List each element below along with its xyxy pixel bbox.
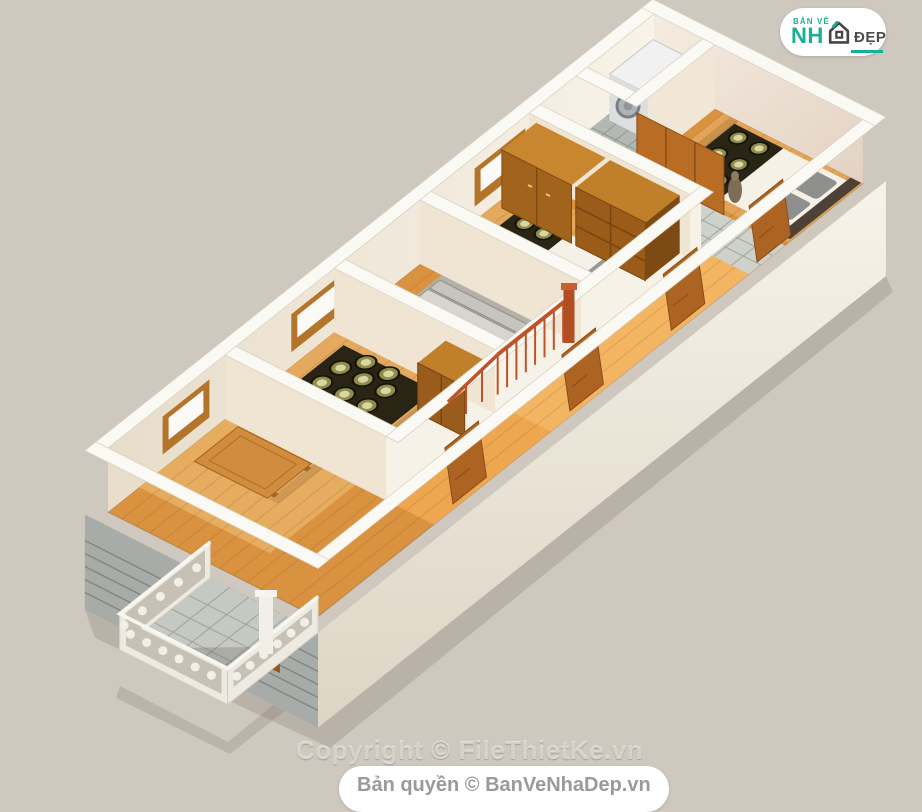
site-logo: BẢN VẼ NH ĐẸP: [780, 8, 886, 56]
logo-main-label: NH: [791, 23, 824, 49]
balcony-column: [259, 596, 273, 654]
house-icon: [824, 15, 854, 47]
footer-copyright-pill: Bản quyền © BanVeNhaDep.vn: [339, 766, 669, 812]
newel-post: [564, 287, 575, 343]
floorplan-3d-scene: [0, 0, 922, 798]
floorplan-3d-render: [0, 0, 922, 798]
footer-copyright-text: Bản quyền © BanVeNhaDep.vn: [357, 774, 651, 797]
logo-underline: [851, 50, 883, 53]
logo-suffix-label: ĐẸP: [854, 29, 886, 46]
copyright-watermark: Copyright © FileThietKe.vn: [296, 735, 636, 766]
